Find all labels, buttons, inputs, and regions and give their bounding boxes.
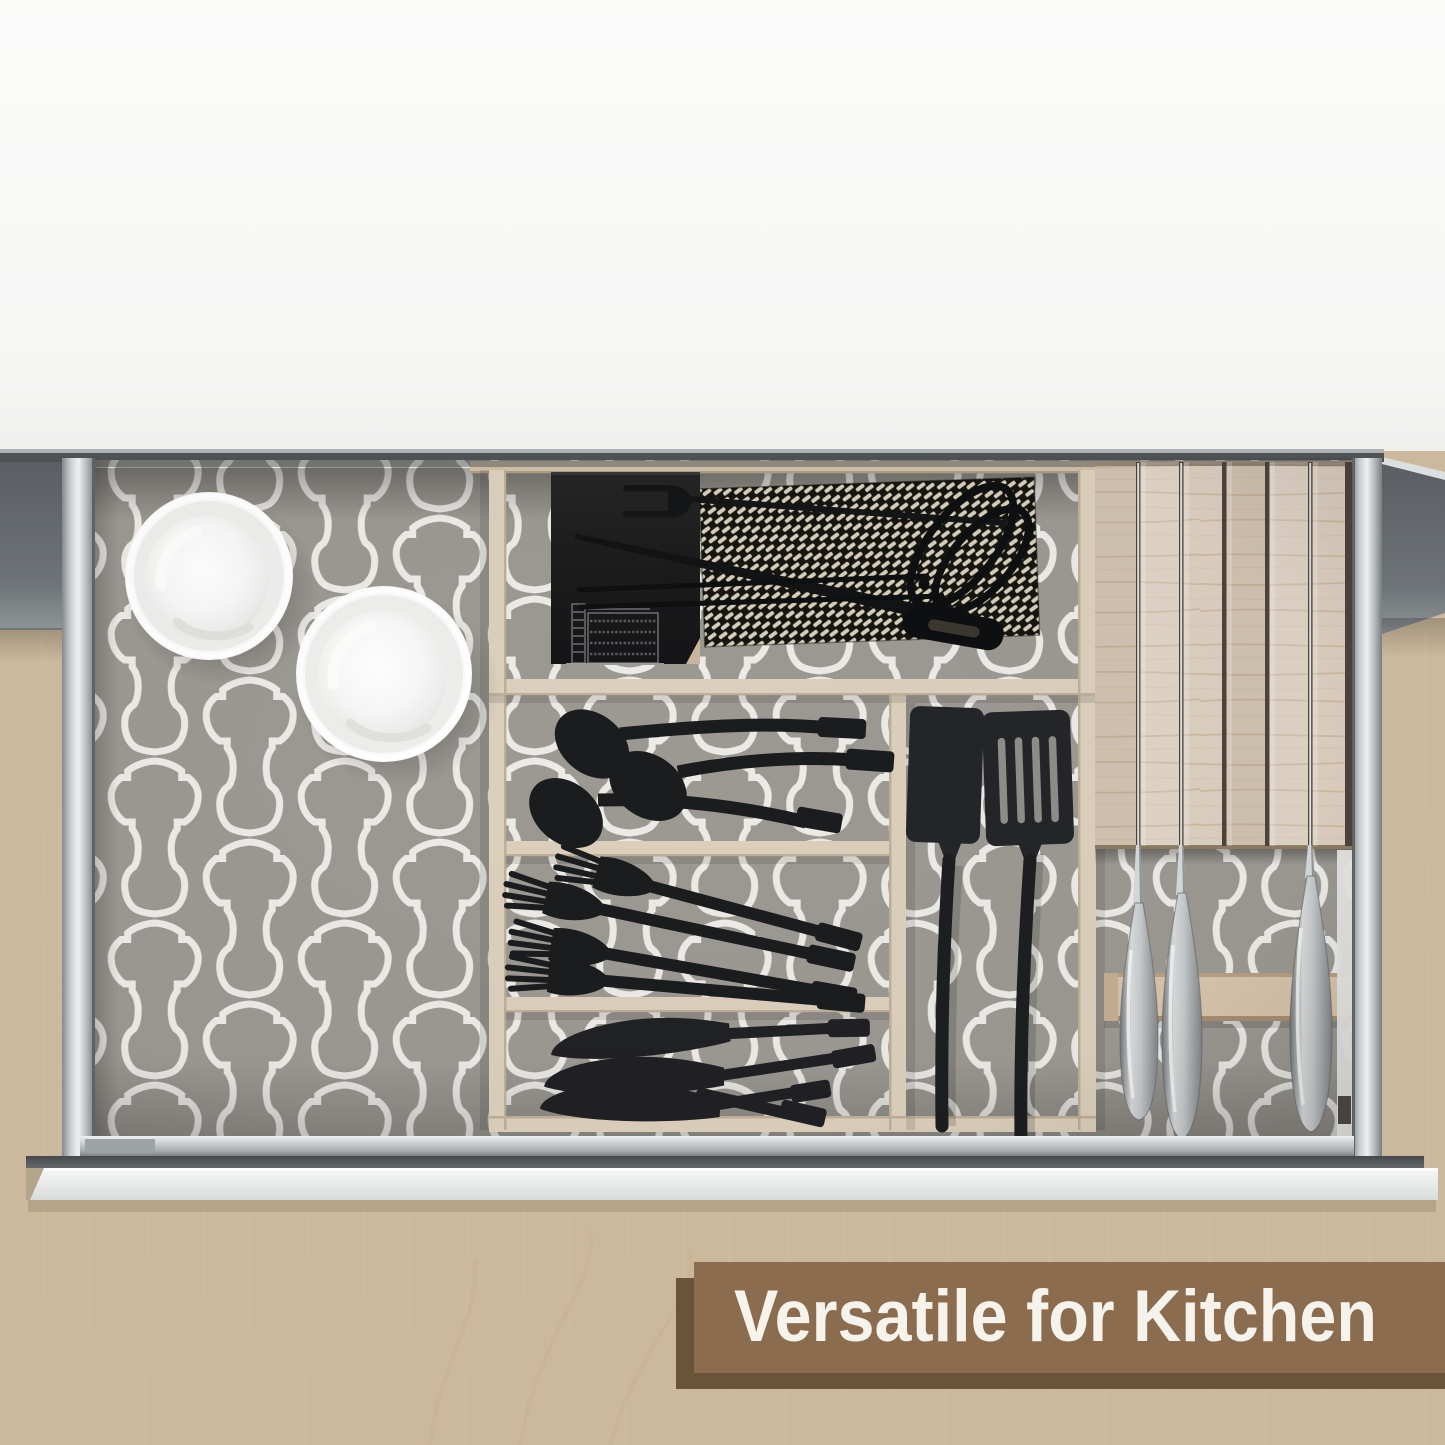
svg-text:Versatile for Kitchen: Versatile for Kitchen (734, 1276, 1377, 1357)
